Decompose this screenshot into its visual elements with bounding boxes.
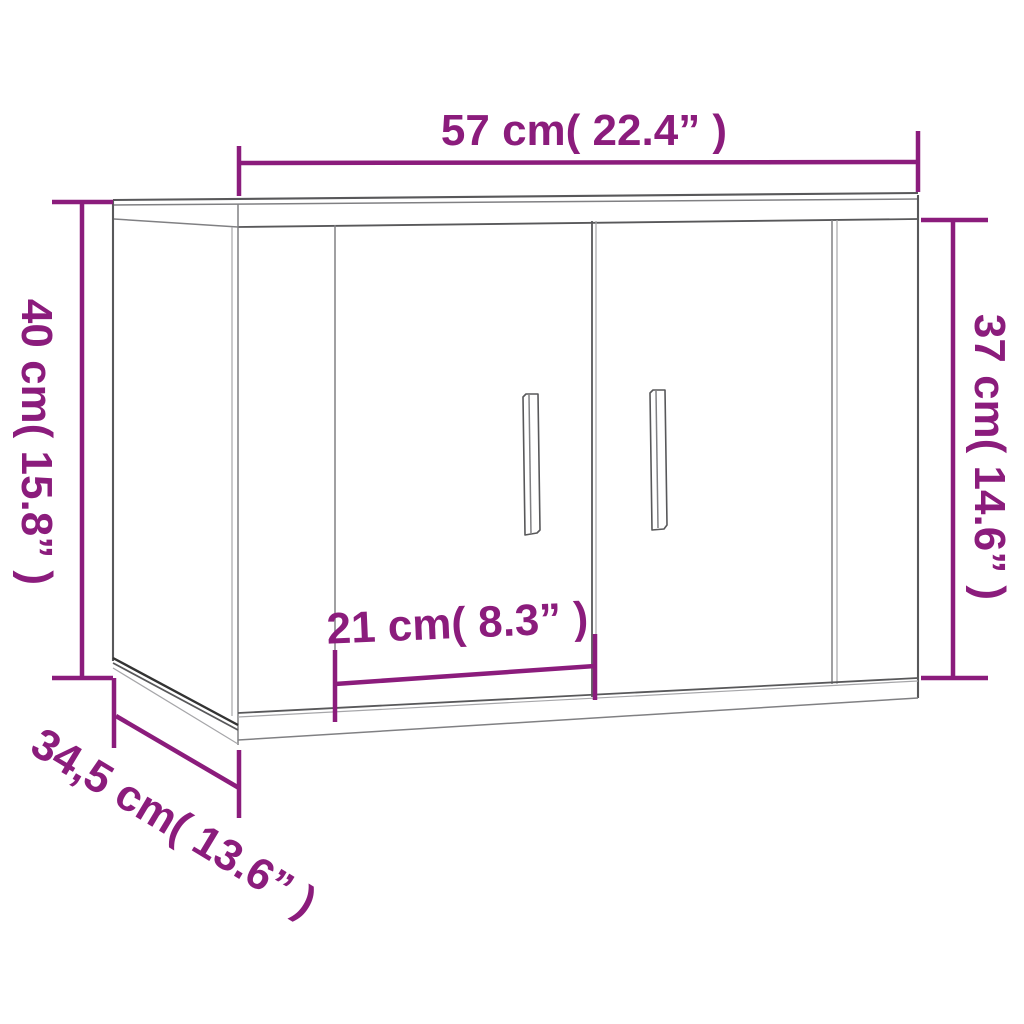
door-width-dimension-line [335, 666, 595, 684]
front-height-dimension: 37 cm( 14.6” ) [921, 220, 1014, 678]
left-handle-body [523, 394, 540, 535]
right-door-handle [650, 390, 667, 530]
height-dimension-label: 40 cm( 15.8” ) [12, 299, 61, 585]
top-back-edge [113, 193, 918, 200]
side-bottom-edge [113, 658, 238, 725]
width-dimension: 57 cm( 22.4” ) [239, 106, 918, 196]
bottom-band-front [238, 698, 918, 740]
door-bottom-edge-2 [238, 681, 918, 717]
side-bottom-edge-2 [113, 663, 238, 730]
cabinet-outer-edges [113, 195, 918, 745]
front-height-dimension-label: 37 cm( 14.6” ) [965, 314, 1014, 600]
side-bottom-edge-3 [113, 668, 238, 744]
door-width-dimension-label: 21 cm( 8.3” ) [326, 593, 590, 653]
cabinet-drawing [113, 193, 918, 745]
dimension-diagram: 57 cm( 22.4” ) 40 cm( 15.8” ) 37 cm( 14.… [0, 0, 1024, 1024]
product-dimension-image: 57 cm( 22.4” ) 40 cm( 15.8” ) 37 cm( 14.… [0, 0, 1024, 1024]
top-band-side [114, 219, 238, 227]
left-door-handle [523, 394, 540, 535]
top-band-front [238, 219, 918, 227]
width-dimension-line [239, 162, 918, 163]
door-width-dimension: 21 cm( 8.3” ) [326, 593, 595, 722]
right-handle-body [650, 390, 667, 530]
width-dimension-label: 57 cm( 22.4” ) [441, 106, 727, 155]
cabinet-top-panel [113, 193, 918, 227]
height-dimension: 40 cm( 15.8” ) [12, 202, 113, 678]
